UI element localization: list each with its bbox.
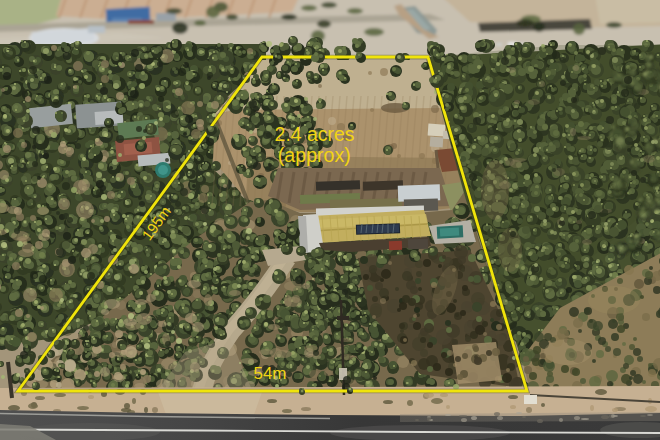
- svg-text:(approx): (approx): [278, 144, 351, 166]
- svg-text:54m: 54m: [253, 364, 286, 383]
- svg-text:2.4 acres: 2.4 acres: [275, 123, 355, 145]
